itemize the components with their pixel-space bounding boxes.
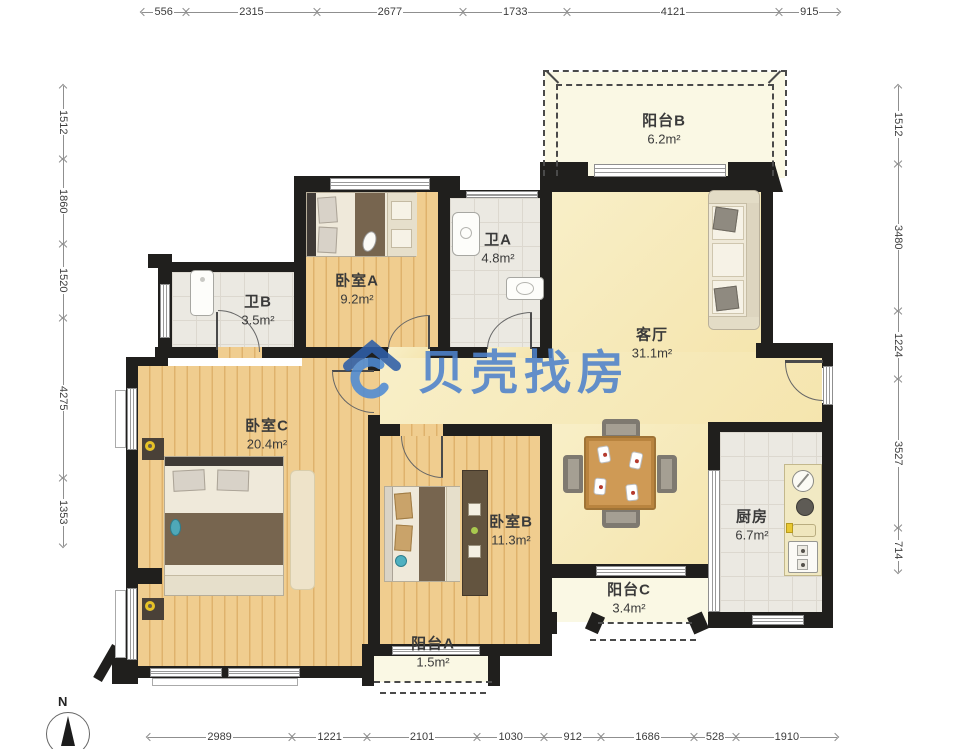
wall: [708, 422, 833, 432]
wall-stub: [488, 644, 500, 686]
dimension-arrow-icon: [59, 316, 67, 324]
window-sill: [115, 390, 126, 448]
balcony-a-dashed-edge: [380, 692, 486, 694]
room-label-bedroom-b: 卧室B 11.3m²: [489, 511, 533, 548]
dimension-chain-left: 15121860152042751353: [55, 85, 71, 547]
wall: [761, 190, 773, 345]
dimension-value: 556: [153, 6, 173, 18]
dimension-segment: 1221: [292, 729, 367, 745]
dimension-arrow-icon: [59, 242, 67, 250]
room-label-balcony-b: 阳台B 6.2m²: [642, 110, 686, 147]
dimension-segment: 915: [779, 4, 840, 20]
bed-headboard: [165, 457, 283, 466]
dining-chair: [563, 455, 583, 493]
room-label-living: 客厅 31.1m²: [632, 324, 672, 361]
dimension-value: 1520: [57, 267, 69, 293]
wardrobe: [462, 470, 488, 596]
bed-bench: [446, 487, 460, 581]
wall-stub: [362, 644, 374, 686]
wall: [438, 176, 450, 357]
dimension-value: 1512: [892, 111, 904, 137]
dimension-arrow-icon: [476, 733, 484, 741]
dimension-value: 1686: [634, 731, 660, 743]
room-area: 4.8m²: [481, 251, 514, 266]
folded-duvet: [391, 201, 412, 220]
bed-headboard: [385, 487, 393, 581]
dimension-value: 1910: [774, 731, 800, 743]
window: [752, 615, 804, 625]
dimension-arrow-icon: [831, 733, 839, 741]
kitchen-sliding-door: [708, 470, 720, 612]
window: [127, 388, 137, 450]
bed-decor: [395, 555, 407, 567]
door-opening: [400, 424, 443, 436]
window-sill: [115, 590, 126, 658]
room-name: 厨房: [735, 506, 768, 527]
room-name: 阳台A: [411, 633, 455, 654]
dimension-segment: 1733: [463, 4, 567, 20]
dimension-arrow-icon: [600, 733, 608, 741]
wardrobe-knob: [468, 503, 481, 516]
dimension-arrow-icon: [59, 540, 67, 548]
dimension-value: 1030: [497, 731, 523, 743]
room-area: 9.2m²: [335, 292, 379, 307]
stove: [788, 541, 818, 573]
wall: [756, 343, 833, 358]
dimension-arrow-icon: [833, 8, 841, 16]
dining-chair: [657, 455, 677, 493]
kitchen-item: [786, 523, 793, 533]
entry-threshold: [823, 366, 833, 405]
dimension-value: 528: [705, 731, 725, 743]
sofa-armrest: [709, 316, 759, 329]
sofa: [708, 190, 760, 330]
pillow: [217, 469, 250, 491]
room-name: 卧室A: [335, 270, 379, 291]
wall: [126, 357, 168, 366]
dimension-arrow-icon: [734, 733, 742, 741]
dining-table: [584, 436, 656, 510]
dining-chair: [602, 508, 640, 528]
dimension-arrow-icon: [894, 84, 902, 92]
room-label-balcony-a: 阳台A 1.5m²: [411, 633, 455, 670]
plate-dot: [635, 459, 640, 464]
dimension-arrow-icon: [894, 309, 902, 317]
room-name: 阳台B: [642, 110, 686, 131]
plate: [597, 445, 612, 464]
heater-dot: [200, 277, 205, 282]
dimension-value: 3527: [892, 440, 904, 466]
window: [150, 668, 222, 677]
room-name: 阳台C: [607, 579, 651, 600]
dimension-arrow-icon: [693, 733, 701, 741]
room-name: 卫B: [241, 291, 274, 312]
plate-dot: [599, 485, 603, 489]
chair-seat: [606, 512, 636, 523]
dimension-segment: 4275: [55, 318, 71, 478]
dimension-value: 4121: [660, 6, 686, 18]
washbasin: [506, 277, 544, 300]
dimension-arrow-icon: [543, 733, 551, 741]
room-name: 卧室B: [489, 511, 533, 532]
pillow: [394, 492, 413, 519]
dimension-segment: 1686: [601, 729, 694, 745]
dimension-arrow-icon: [59, 477, 67, 485]
dimension-segment: 3480: [890, 164, 906, 311]
bed-headboard: [307, 193, 316, 256]
dimension-arrow-icon: [894, 566, 902, 574]
dimension-arrow-icon: [140, 8, 148, 16]
dimension-arrow-icon: [366, 733, 374, 741]
washing-machine: [452, 212, 480, 256]
dimension-arrow-icon: [59, 158, 67, 166]
room-area: 3.4m²: [607, 601, 651, 616]
dimension-value: 2677: [377, 6, 403, 18]
sofa-pillow: [714, 286, 740, 312]
dimension-arrow-icon: [291, 733, 299, 741]
dimension-chain-top: 5562315267717334121915: [141, 4, 840, 20]
sofa-cushion: [712, 243, 744, 277]
water-heater: [190, 270, 214, 316]
folded-duvet: [391, 229, 412, 248]
watermark-text: 贝壳找房: [418, 343, 630, 403]
cutting-board: [792, 524, 816, 537]
dimension-segment: 1224: [890, 311, 906, 380]
dimension-arrow-icon: [315, 8, 323, 16]
sliding-door: [596, 566, 686, 576]
bed: [306, 192, 416, 257]
room-label-bedroom-a: 卧室A 9.2m²: [335, 270, 379, 307]
dimension-segment: 1520: [55, 244, 71, 318]
dimension-chain-right: 1512348012243527714: [890, 85, 906, 573]
dimension-value: 1224: [892, 332, 904, 358]
dimension-value: 1860: [57, 188, 69, 214]
balcony-c-dashed-edge: [590, 639, 696, 641]
dimension-segment: 1910: [736, 729, 838, 745]
sofa-backrest: [746, 203, 759, 317]
dimension-segment: 3527: [890, 379, 906, 527]
washer-door: [460, 227, 472, 239]
dimension-value: 714: [892, 540, 904, 560]
wall: [822, 432, 833, 628]
pillow: [172, 469, 205, 492]
pillow: [317, 196, 338, 223]
chair-seat: [606, 424, 636, 435]
dimension-arrow-icon: [59, 84, 67, 92]
dimension-arrow-icon: [146, 733, 154, 741]
wardrobe-dot: [471, 527, 478, 534]
wall: [540, 176, 552, 352]
lamp: [145, 601, 155, 611]
bed: [384, 486, 460, 582]
compass-needle-icon: [61, 716, 75, 746]
sofa-pillow: [713, 207, 739, 233]
wall: [588, 176, 728, 192]
room-name: 卧室C: [245, 415, 289, 436]
chair-seat: [661, 459, 672, 489]
dimension-value: 2989: [206, 731, 232, 743]
dimension-value: 912: [562, 731, 582, 743]
lamp: [145, 441, 155, 451]
dimension-segment: 2101: [367, 729, 477, 745]
room-label-bath-b: 卫B 3.5m²: [241, 291, 274, 328]
plate: [628, 451, 643, 470]
dimension-value: 915: [799, 6, 819, 18]
dimension-arrow-icon: [894, 378, 902, 386]
rug: [290, 470, 315, 590]
window: [160, 284, 170, 338]
wall-step: [126, 568, 162, 584]
wardrobe-knob: [468, 545, 481, 558]
dimension-segment: 714: [890, 528, 906, 573]
dimension-segment: 1353: [55, 478, 71, 547]
wall-stub: [540, 612, 557, 634]
dimension-chain-bottom: 298912212101103091216865281910: [147, 729, 838, 745]
room-label-bedroom-c: 卧室C 20.4m²: [245, 415, 289, 452]
wall-corner: [112, 658, 138, 684]
room-name: 客厅: [632, 324, 672, 345]
stove-burner: [796, 498, 814, 516]
dimension-segment: 2989: [147, 729, 292, 745]
plate: [593, 478, 606, 496]
dimension-value: 1353: [57, 499, 69, 525]
bed-blanket: [165, 513, 283, 565]
window-sill: [152, 678, 298, 686]
basin-bowl: [516, 282, 534, 295]
dimension-arrow-icon: [185, 8, 193, 16]
plate-dot: [603, 453, 608, 458]
bed-blanket: [419, 487, 445, 581]
room-area: 3.5m²: [241, 313, 274, 328]
plate-dot: [631, 491, 635, 495]
bed: [164, 456, 284, 596]
dimension-value: 3480: [892, 224, 904, 250]
plate: [625, 483, 639, 501]
bed-tray: [170, 519, 181, 536]
chair-seat: [568, 459, 579, 489]
room-area: 6.7m²: [735, 528, 768, 543]
dimension-segment: 528: [694, 729, 735, 745]
wall: [708, 432, 720, 470]
dimension-arrow-icon: [894, 163, 902, 171]
dimension-value: 1512: [57, 109, 69, 135]
compass-north-label: N: [58, 694, 67, 709]
window: [466, 191, 538, 198]
dimension-value: 1221: [316, 731, 342, 743]
dimension-segment: 1030: [477, 729, 544, 745]
dimension-segment: 912: [544, 729, 601, 745]
pillow: [317, 227, 337, 254]
balcony-c-dashed-edge: [598, 622, 692, 624]
window: [330, 178, 430, 190]
window: [127, 588, 137, 660]
floor-plan-canvas: 阳台B 6.2m² 卫A 4.8m² 卧室A 9.2m² 卫B 3.5m² 客厅…: [0, 0, 960, 749]
dimension-segment: 1860: [55, 159, 71, 244]
dimension-segment: 556: [141, 4, 186, 20]
dimension-segment: 1512: [890, 85, 906, 164]
room-area: 1.5m²: [411, 655, 455, 670]
room-area: 6.2m²: [642, 132, 686, 147]
dimension-value: 4275: [57, 385, 69, 411]
room-area: 11.3m²: [489, 533, 533, 548]
dimension-segment: 4121: [567, 4, 778, 20]
burner-pad: [797, 545, 808, 556]
dimension-value: 2315: [238, 6, 264, 18]
dimension-value: 2101: [409, 731, 435, 743]
window: [228, 668, 300, 677]
room-area: 20.4m²: [245, 437, 289, 452]
balcony-a-dashed-edge: [374, 681, 492, 683]
dimension-value: 1733: [502, 6, 528, 18]
room-label-kitchen: 厨房 6.7m²: [735, 506, 768, 543]
dimension-segment: 2677: [317, 4, 464, 20]
burner-pad: [797, 559, 808, 570]
burner-dot: [801, 563, 805, 567]
room-area: 31.1m²: [632, 346, 672, 361]
dimension-arrow-icon: [566, 8, 574, 16]
dimension-arrow-icon: [462, 8, 470, 16]
dimension-arrow-icon: [894, 527, 902, 535]
burner-dot: [801, 549, 805, 553]
wall-step: [148, 254, 172, 268]
wall: [158, 262, 306, 272]
room-label-bath-a: 卫A 4.8m²: [481, 229, 514, 266]
bed-bench: [165, 575, 283, 595]
pillow: [394, 524, 413, 551]
room-name: 卫A: [481, 229, 514, 250]
beike-house-icon: [340, 338, 404, 407]
room-label-balcony-c: 阳台C 3.4m²: [607, 579, 651, 616]
dimension-segment: 1512: [55, 85, 71, 159]
dimension-segment: 2315: [186, 4, 316, 20]
watermark: 贝壳找房: [340, 338, 630, 407]
dimension-arrow-icon: [777, 8, 785, 16]
